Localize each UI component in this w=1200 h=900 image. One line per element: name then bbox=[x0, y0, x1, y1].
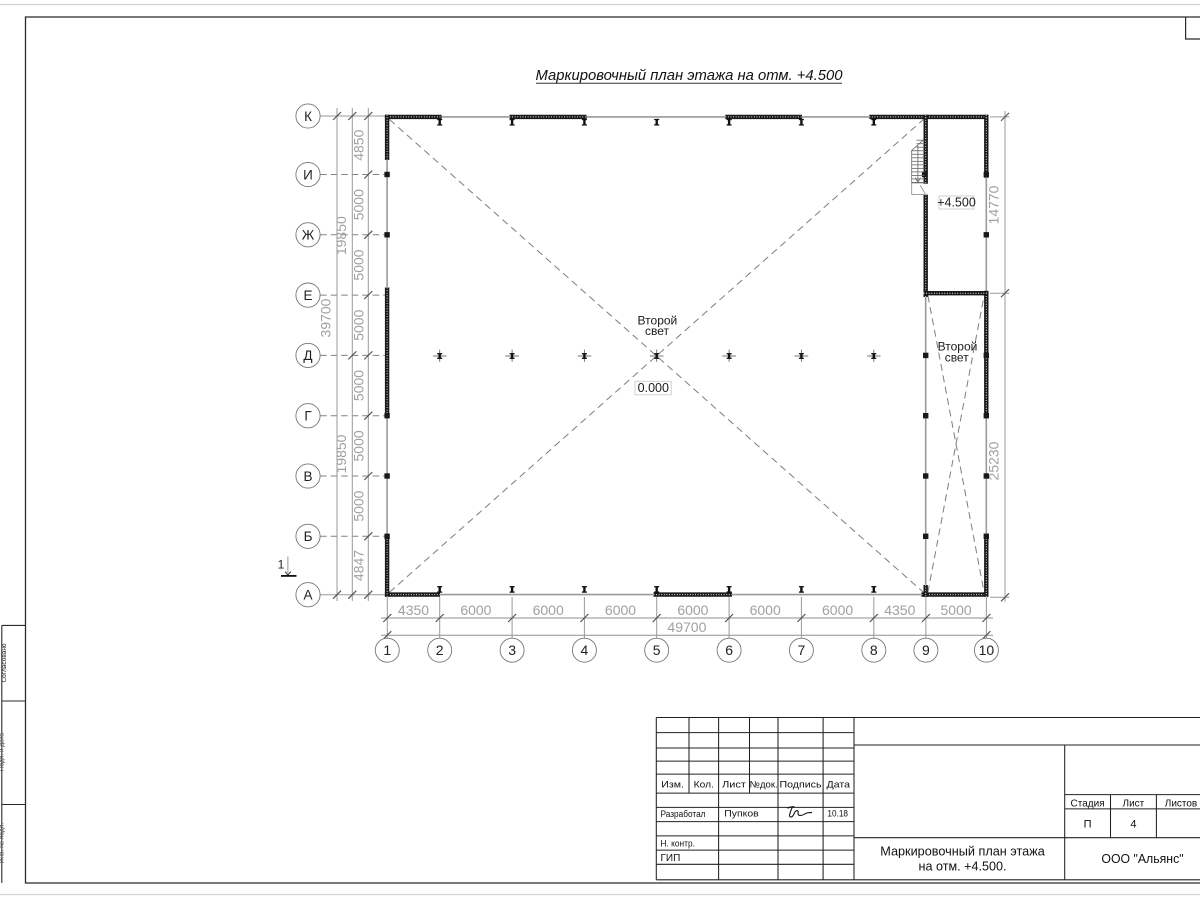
svg-text:И: И bbox=[303, 167, 313, 182]
svg-text:6000: 6000 bbox=[605, 602, 636, 618]
svg-text:6000: 6000 bbox=[460, 602, 491, 618]
svg-text:А: А bbox=[303, 588, 312, 603]
svg-text:5000: 5000 bbox=[350, 249, 366, 280]
svg-text:Кол.: Кол. bbox=[694, 779, 714, 790]
svg-text:свет: свет bbox=[945, 351, 970, 365]
svg-text:6000: 6000 bbox=[750, 602, 781, 618]
svg-text:Лист: Лист bbox=[1123, 798, 1145, 809]
svg-text:Стадия: Стадия bbox=[1071, 798, 1105, 809]
svg-text:2: 2 bbox=[436, 642, 444, 658]
svg-text:4350: 4350 bbox=[884, 602, 915, 618]
svg-text:19850: 19850 bbox=[333, 434, 349, 473]
svg-text:В: В bbox=[303, 469, 312, 484]
svg-text:Пупков: Пупков bbox=[724, 809, 758, 820]
svg-text:5000: 5000 bbox=[350, 189, 366, 220]
svg-text:5000: 5000 bbox=[350, 490, 366, 521]
svg-text:7: 7 bbox=[798, 642, 806, 658]
svg-text:3: 3 bbox=[508, 642, 516, 658]
svg-text:Изм.: Изм. bbox=[661, 779, 684, 790]
svg-text:Подп. и дата: Подп. и дата bbox=[0, 732, 6, 771]
svg-text:ООО "Альянс": ООО "Альянс" bbox=[1101, 852, 1183, 866]
svg-text:Ж: Ж bbox=[302, 228, 315, 243]
svg-text:Маркировочный план этажа на от: Маркировочный план этажа на отм. +4.500 bbox=[536, 68, 843, 84]
svg-text:Разработал: Разработал bbox=[661, 809, 706, 819]
svg-text:14770: 14770 bbox=[986, 185, 1002, 224]
svg-text:Е: Е bbox=[303, 288, 312, 303]
svg-text:39700: 39700 bbox=[318, 298, 334, 337]
svg-text:№док.: №док. bbox=[750, 779, 778, 790]
svg-text:5000: 5000 bbox=[350, 370, 366, 401]
svg-text:1: 1 bbox=[278, 558, 285, 572]
svg-text:4350: 4350 bbox=[398, 602, 429, 618]
svg-text:Инв. № подл.: Инв. № подл. bbox=[0, 823, 6, 864]
svg-text:Листов: Листов bbox=[1165, 798, 1198, 809]
svg-text:4: 4 bbox=[1130, 819, 1136, 831]
svg-text:+4.500: +4.500 bbox=[937, 196, 976, 210]
svg-text:4: 4 bbox=[581, 642, 589, 658]
svg-text:П: П bbox=[1084, 819, 1092, 831]
svg-text:6000: 6000 bbox=[822, 602, 853, 618]
svg-text:10.18: 10.18 bbox=[827, 808, 848, 818]
svg-text:К: К bbox=[304, 109, 312, 124]
svg-text:49700: 49700 bbox=[667, 619, 706, 635]
svg-text:6000: 6000 bbox=[533, 602, 564, 618]
svg-text:1: 1 bbox=[383, 642, 391, 658]
svg-text:Д: Д bbox=[303, 348, 312, 363]
svg-text:0.000: 0.000 bbox=[638, 381, 669, 395]
svg-text:на отм. +4.500.: на отм. +4.500. bbox=[919, 859, 1007, 874]
svg-text:Г: Г bbox=[304, 409, 312, 424]
svg-text:8: 8 bbox=[870, 642, 878, 658]
svg-text:4850: 4850 bbox=[350, 129, 366, 160]
svg-text:Подпись: Подпись bbox=[780, 779, 822, 790]
svg-text:4847: 4847 bbox=[350, 550, 366, 581]
svg-text:5000: 5000 bbox=[350, 430, 366, 461]
svg-text:Маркировочный план этажа: Маркировочный план этажа bbox=[880, 844, 1045, 859]
svg-text:Лист: Лист bbox=[722, 779, 746, 790]
svg-text:ГИП: ГИП bbox=[661, 853, 681, 864]
svg-text:5: 5 bbox=[653, 642, 661, 658]
svg-text:6: 6 bbox=[725, 642, 733, 658]
svg-text:9: 9 bbox=[922, 642, 930, 658]
svg-text:Дата: Дата bbox=[827, 779, 851, 790]
svg-text:10: 10 bbox=[979, 642, 995, 658]
svg-text:19850: 19850 bbox=[333, 216, 349, 255]
svg-text:свет: свет bbox=[645, 324, 670, 338]
svg-text:6000: 6000 bbox=[677, 602, 708, 618]
svg-text:5000: 5000 bbox=[941, 602, 972, 618]
svg-text:Согласовано: Согласовано bbox=[1, 643, 8, 682]
svg-text:Н. контр.: Н. контр. bbox=[661, 839, 695, 849]
svg-text:Б: Б bbox=[304, 529, 313, 544]
svg-text:5000: 5000 bbox=[350, 309, 366, 340]
